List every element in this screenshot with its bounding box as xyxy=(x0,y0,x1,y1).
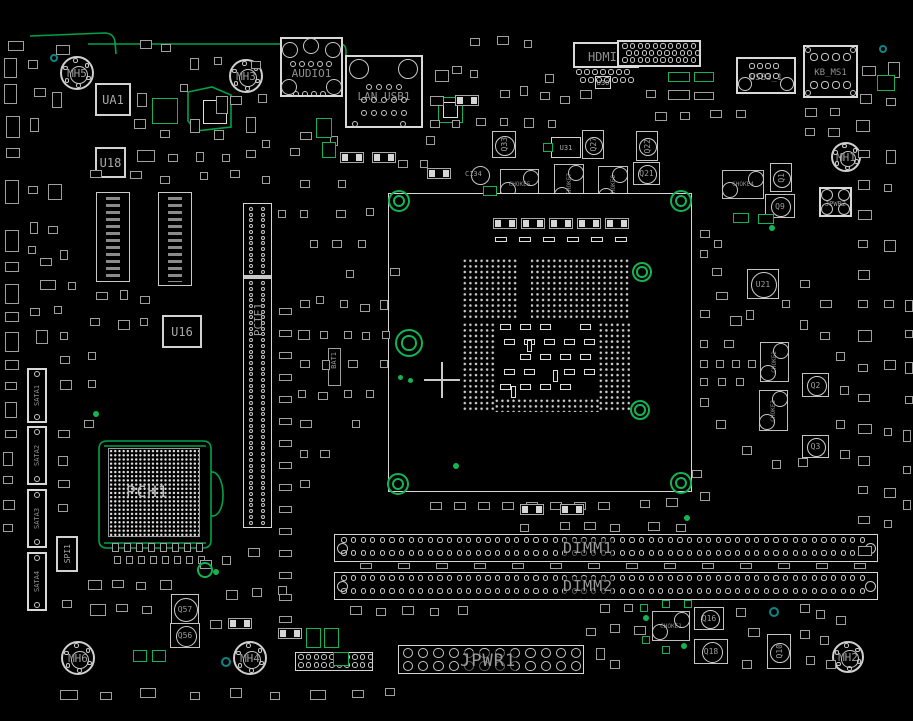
mounting-hole-via xyxy=(245,86,250,91)
smd-part xyxy=(458,606,468,615)
green-via xyxy=(681,643,687,649)
smd-part xyxy=(884,300,894,308)
connector-pin-hole xyxy=(311,91,317,97)
smd-part xyxy=(5,382,17,390)
connector-pin-hole xyxy=(653,43,658,48)
smd-part xyxy=(130,171,142,179)
connector-pin-hole xyxy=(299,61,305,67)
dimm-pin-hole xyxy=(457,537,462,542)
dimm-pin-hole xyxy=(553,575,558,580)
smd-part xyxy=(90,604,106,616)
pcie-pin-hole xyxy=(249,350,253,354)
smd-part xyxy=(48,184,62,200)
ic-spi1[interactable]: SPI1 xyxy=(56,536,78,572)
smd-part xyxy=(60,332,68,340)
smd-part xyxy=(262,176,270,184)
pcie-pin-hole xyxy=(249,492,253,496)
smd-part xyxy=(858,424,872,434)
smd-part xyxy=(610,660,620,669)
mounting-hole-label: MH5 xyxy=(67,67,87,80)
smd-part xyxy=(160,176,170,184)
pcie-pin-hole xyxy=(249,521,253,525)
smd-part xyxy=(540,92,550,100)
smd-part xyxy=(346,270,354,278)
smd-part xyxy=(600,604,610,613)
pch-fanout-pad xyxy=(112,543,119,552)
transistor-q21[interactable]: Q21 xyxy=(633,162,660,185)
highlighted-part xyxy=(662,646,670,654)
cpu-socket[interactable] xyxy=(388,193,692,492)
smd-part xyxy=(88,380,96,388)
smd-part xyxy=(858,394,870,402)
socket-center-part xyxy=(584,369,595,375)
smd-part xyxy=(903,430,911,442)
smd-part xyxy=(5,312,19,322)
pcie-pin-hole xyxy=(249,475,253,479)
pcie-pin-hole xyxy=(249,247,253,251)
pch-fanout-pad xyxy=(160,543,167,552)
smd-part xyxy=(836,420,845,429)
connector-port-hole xyxy=(326,79,342,95)
dimm-pin-hole xyxy=(639,588,644,593)
smd-part xyxy=(60,356,70,364)
smd-part xyxy=(836,616,846,625)
smd-part xyxy=(180,84,188,92)
smd-part xyxy=(470,70,478,78)
dimm-pin-hole xyxy=(380,588,385,593)
socket-center-part xyxy=(540,384,551,390)
pcie-slot[interactable] xyxy=(243,203,272,528)
dimm-pin-hole xyxy=(812,550,817,555)
connector-pin-hole xyxy=(584,69,589,74)
smd-part xyxy=(524,118,534,128)
inter-dimm-part xyxy=(740,563,752,569)
smd-part xyxy=(30,308,40,316)
dimm-pin-hole xyxy=(524,575,529,580)
pch-fanout-pad xyxy=(186,556,193,564)
smd-part xyxy=(742,660,752,669)
dimm-pin-hole xyxy=(437,575,442,580)
transistor-u21[interactable]: U21 xyxy=(747,269,779,299)
pcie-pin-hole xyxy=(249,407,253,411)
transistor-q3[interactable]: Q3 xyxy=(802,435,829,458)
dimm-pin-hole xyxy=(620,575,625,580)
pcb-board-canvas[interactable]: UA1U18U16U30U31SPI1U21Q33Q27Q22Q21Q1Q9Q2… xyxy=(0,0,913,721)
connector-port-hole xyxy=(303,38,319,54)
pcie-pin-hole xyxy=(249,270,253,274)
smd-part xyxy=(402,606,414,615)
transistor-label-wrap: Q10 xyxy=(768,635,790,668)
pcie-pin-hole xyxy=(261,207,265,211)
green-via xyxy=(408,378,413,383)
smd-part xyxy=(840,450,850,459)
transistor-q22[interactable]: Q22 xyxy=(636,131,658,161)
resistor-pair xyxy=(427,168,451,179)
smd-part xyxy=(700,340,708,348)
smd-part xyxy=(426,136,435,145)
smd-part xyxy=(34,88,46,97)
dimm-pin-hole xyxy=(735,588,740,593)
dimm-pin-hole xyxy=(457,575,462,580)
dimm-pin-hole xyxy=(428,575,433,580)
smd-part xyxy=(700,378,708,386)
transistor-label-wrap: Q56 xyxy=(171,624,199,647)
highlighted-part xyxy=(483,186,497,196)
smd-part xyxy=(279,396,292,403)
pcie-pin-hole xyxy=(261,350,265,354)
transistor-q18[interactable]: Q18 xyxy=(694,639,728,664)
dimm-pin-hole xyxy=(649,575,654,580)
fp-pin-hole xyxy=(314,662,320,668)
connector-pin-hole xyxy=(580,77,585,82)
transistor-q27[interactable]: Q27 xyxy=(582,130,604,159)
smd-part xyxy=(279,506,292,513)
pch-fanout-pad xyxy=(138,556,145,564)
smd-part xyxy=(746,310,754,320)
smd-part xyxy=(4,84,17,104)
connector-pin-hole xyxy=(843,81,850,88)
mounting-hole-via xyxy=(86,76,91,81)
dimm-pin-hole xyxy=(409,588,414,593)
highlighted-part xyxy=(316,118,332,138)
smd-part xyxy=(336,210,346,218)
transistor-q1[interactable]: Q1 xyxy=(770,163,792,192)
inter-dimm-part xyxy=(588,563,600,569)
smd-part xyxy=(820,332,830,340)
connector-pin-hole xyxy=(843,53,850,60)
smd-part xyxy=(140,688,156,698)
transistor-q10[interactable]: Q10 xyxy=(767,634,791,669)
smd-part xyxy=(903,500,911,510)
ic-u16[interactable]: U16 xyxy=(162,315,202,348)
smd-part xyxy=(646,90,656,98)
mounting-hole-label: MH4 xyxy=(240,652,260,665)
connector-pin-hole xyxy=(620,77,625,82)
pin-header-left-b xyxy=(158,192,192,286)
crosshair xyxy=(441,362,443,398)
mounting-hole-via xyxy=(232,69,237,74)
connector-label: SATA3 xyxy=(29,491,45,546)
ic-u31[interactable]: U31 xyxy=(551,137,581,158)
smd-part xyxy=(279,550,292,557)
dimm-pin-hole xyxy=(476,537,481,542)
connector-pin-hole xyxy=(683,43,688,48)
connector-pin-hole xyxy=(326,61,332,67)
dimm-pin-hole xyxy=(716,575,721,580)
connector-pin-hole xyxy=(645,43,650,48)
inter-dimm-part xyxy=(854,563,866,569)
socket-center-part xyxy=(520,324,531,330)
atx-pin-hole xyxy=(541,661,551,671)
smd-part xyxy=(279,616,292,623)
dimm-pin-hole xyxy=(773,550,778,555)
socket-center-part xyxy=(540,324,551,330)
connector-pin-hole xyxy=(320,91,326,97)
socket-center-part xyxy=(584,339,595,345)
smd-part xyxy=(520,86,528,96)
connector-pin-hole xyxy=(672,50,677,55)
transistor-label-wrap: Q57 xyxy=(172,595,198,623)
fp-pin-hole xyxy=(321,654,327,660)
connector-pin-hole xyxy=(34,476,40,482)
smd-part xyxy=(160,580,172,590)
connector-pin-hole xyxy=(749,73,754,78)
dimm-pin-hole xyxy=(505,588,510,593)
smd-part xyxy=(452,120,460,128)
dimm-pin-hole xyxy=(485,550,490,555)
pcie-pin-hole xyxy=(249,401,253,405)
connector-pin-hole xyxy=(642,50,647,55)
smd-part xyxy=(676,524,686,532)
pcie-pin-hole xyxy=(249,253,253,257)
smd-part xyxy=(36,330,48,344)
transistor-label: U21 xyxy=(756,280,770,289)
transistor-label-wrap: Q3 xyxy=(803,436,828,457)
pcie-pin-hole xyxy=(261,264,265,268)
smd-part xyxy=(840,386,849,395)
dimm-pin-hole xyxy=(495,575,500,580)
connector-pin-hole xyxy=(657,50,662,55)
resistor-pair xyxy=(493,218,517,229)
socket-center-part xyxy=(520,384,531,390)
smd-part xyxy=(230,96,242,105)
transistor-q33[interactable]: Q33 xyxy=(492,131,516,158)
dimm-pin-hole xyxy=(697,575,702,580)
pcie-pin-hole xyxy=(261,464,265,468)
connector-pin-hole xyxy=(757,73,762,78)
smd-part xyxy=(886,150,896,164)
smd-part xyxy=(3,476,13,484)
smd-part xyxy=(366,208,374,216)
transistor-q56[interactable]: Q56 xyxy=(170,623,200,648)
choke-core xyxy=(748,171,764,187)
dimm-pin-hole xyxy=(361,575,366,580)
smd-part xyxy=(858,210,872,220)
smd-part xyxy=(332,240,342,248)
highlighted-part xyxy=(152,98,178,124)
dimm-pin-hole xyxy=(495,550,500,555)
resistor-pair xyxy=(455,95,479,106)
dimm-pin-hole xyxy=(341,575,346,580)
smd-part xyxy=(310,690,326,700)
dimm-pin-hole xyxy=(649,550,654,555)
connector-pin-hole xyxy=(622,43,627,48)
smd-part xyxy=(28,246,36,254)
dimm-pin-hole xyxy=(764,588,769,593)
connector-label: SATA2 xyxy=(29,428,45,483)
smd-part xyxy=(828,128,840,137)
socket-center-part xyxy=(511,386,516,398)
smd-part xyxy=(666,498,678,507)
smd-part xyxy=(858,330,872,342)
ic-label: U31 xyxy=(560,144,573,152)
connector-port-hole xyxy=(838,189,850,201)
dimm-pin-hole xyxy=(428,588,433,593)
smd-part xyxy=(5,332,19,352)
transistor-label-wrap: Q2 xyxy=(803,374,828,396)
choke-core xyxy=(759,414,775,430)
fp-pin-hole xyxy=(368,654,374,660)
smd-part xyxy=(310,240,318,248)
inter-dimm-part xyxy=(550,563,562,569)
smd-part xyxy=(62,600,72,608)
smd-part xyxy=(112,580,124,588)
mounting-hole-via xyxy=(63,66,68,71)
smd-part xyxy=(560,96,570,104)
smd-part xyxy=(430,502,442,510)
smd-part xyxy=(478,502,490,510)
pch-fanout-pad xyxy=(150,556,157,564)
choke-core xyxy=(772,391,788,407)
highlighted-part xyxy=(642,636,650,644)
dimm-pin-hole xyxy=(793,537,798,542)
dimm-pin-hole xyxy=(764,575,769,580)
dimm-pin-hole xyxy=(841,575,846,580)
transistor-q2[interactable]: Q2 xyxy=(802,373,829,397)
pcie-pin-hole xyxy=(249,441,253,445)
plated-hole xyxy=(879,45,887,53)
mounting-hole-label: MH2 xyxy=(838,651,858,664)
pcie-pin-hole xyxy=(261,247,265,251)
cpu-pad-grid xyxy=(462,258,630,320)
pcie-pin-hole xyxy=(261,521,265,525)
smd-part xyxy=(816,610,825,619)
green-via xyxy=(453,463,459,469)
smd-part xyxy=(56,45,70,55)
dimm-pin-hole xyxy=(677,588,682,593)
dimm2-label: DIMM2 xyxy=(563,577,613,595)
dimm-pin-hole xyxy=(812,588,817,593)
smd-part xyxy=(90,318,100,326)
connector-pin-hole xyxy=(302,91,308,97)
transistor-q57[interactable]: Q57 xyxy=(171,594,199,624)
ic-ua1[interactable]: UA1 xyxy=(95,83,131,116)
mounting-hole-via xyxy=(249,668,254,673)
connector-pin-hole xyxy=(676,57,681,62)
highlighted-part xyxy=(333,652,349,666)
dimm-pin-hole xyxy=(447,550,452,555)
connector-label-text: SATA2 xyxy=(33,445,41,466)
smd-part xyxy=(340,300,348,308)
dimm-pin-hole xyxy=(495,537,500,542)
smd-part xyxy=(5,262,19,272)
dimm-pin-hole xyxy=(716,550,721,555)
pcie-label-text: PCIE1 xyxy=(252,303,265,336)
transistor-q16[interactable]: Q16 xyxy=(694,607,724,630)
smd-part xyxy=(380,300,388,310)
connector-pin-hole xyxy=(765,63,770,68)
smd-part xyxy=(344,331,352,339)
smd-part xyxy=(279,572,292,579)
pcie-pin-hole xyxy=(249,424,253,428)
dimm-pin-hole xyxy=(389,588,394,593)
connector-pin-hole xyxy=(653,57,658,62)
smd-part xyxy=(782,300,790,308)
transistor-label-wrap: Q18 xyxy=(695,640,727,663)
socket-center-part xyxy=(580,354,591,360)
smd-part xyxy=(246,150,256,158)
smd-part xyxy=(30,118,39,132)
socket-center-part xyxy=(564,339,575,345)
dimm-pin-hole xyxy=(639,575,644,580)
dimm-pin-hole xyxy=(447,575,452,580)
pcie-pin-hole xyxy=(261,458,265,462)
smd-part xyxy=(732,360,740,368)
smd-part xyxy=(322,360,330,370)
fp-pin-hole xyxy=(321,662,327,668)
smd-part xyxy=(454,502,466,510)
smd-part xyxy=(262,140,270,148)
jpwr1-label: JPWR1 xyxy=(460,651,516,671)
connector-pin-hole xyxy=(34,371,40,377)
smd-part xyxy=(692,470,702,478)
dimm-pin-hole xyxy=(860,575,865,580)
inter-dimm-part xyxy=(702,563,714,569)
smd-part xyxy=(858,270,870,280)
dimm-pin-hole xyxy=(677,575,682,580)
connector-pin-hole xyxy=(592,69,597,74)
connector-port-hole xyxy=(821,203,833,215)
pcie-pin-hole xyxy=(261,293,265,297)
dimm-pin-hole xyxy=(764,537,769,542)
transistor-label: Q1 xyxy=(777,173,786,183)
dimm-pin-hole xyxy=(553,588,558,593)
smd-part xyxy=(712,268,722,276)
smd-part xyxy=(586,628,596,636)
connector-pin-hole xyxy=(645,57,650,62)
smd-part xyxy=(230,170,240,178)
smd-part xyxy=(858,300,868,308)
smd-part xyxy=(5,360,19,370)
mounting-hole-via xyxy=(833,150,838,155)
mounting-hole-via xyxy=(844,643,849,648)
smd-part xyxy=(862,66,876,76)
smd-part xyxy=(3,500,15,510)
pcie-pin-hole xyxy=(261,418,265,422)
smd-part xyxy=(884,428,892,436)
dimm-latch-hole xyxy=(337,543,348,554)
smd-part xyxy=(430,608,439,616)
smd-part xyxy=(470,38,480,46)
connector-port-hole xyxy=(838,203,850,215)
pcie-pin-hole xyxy=(249,287,253,291)
smd-part xyxy=(140,40,152,49)
highlighted-part xyxy=(324,628,339,648)
dimm-pin-hole xyxy=(783,588,788,593)
smd-part xyxy=(140,318,148,326)
dimm-pin-hole xyxy=(716,588,721,593)
dimm-pin-hole xyxy=(533,537,538,542)
smd-part xyxy=(714,240,722,248)
pcie-pin-hole xyxy=(249,378,253,382)
smd-part xyxy=(668,90,690,100)
smd-part xyxy=(858,180,870,190)
connector-pin-hole xyxy=(683,57,688,62)
smd-part xyxy=(40,280,56,290)
connector-pin-hole xyxy=(308,61,314,67)
smd-part xyxy=(52,92,62,108)
smd-part xyxy=(258,94,267,103)
dimm-pin-hole xyxy=(380,537,385,542)
dimm-pin-hole xyxy=(639,550,644,555)
atx-pin-hole xyxy=(433,648,443,658)
dimm-pin-hole xyxy=(437,537,442,542)
smd-part xyxy=(84,420,94,428)
dimm-pin-hole xyxy=(793,588,798,593)
smd-part xyxy=(800,630,810,639)
smd-part xyxy=(806,656,815,665)
dimm-pin-hole xyxy=(821,575,826,580)
